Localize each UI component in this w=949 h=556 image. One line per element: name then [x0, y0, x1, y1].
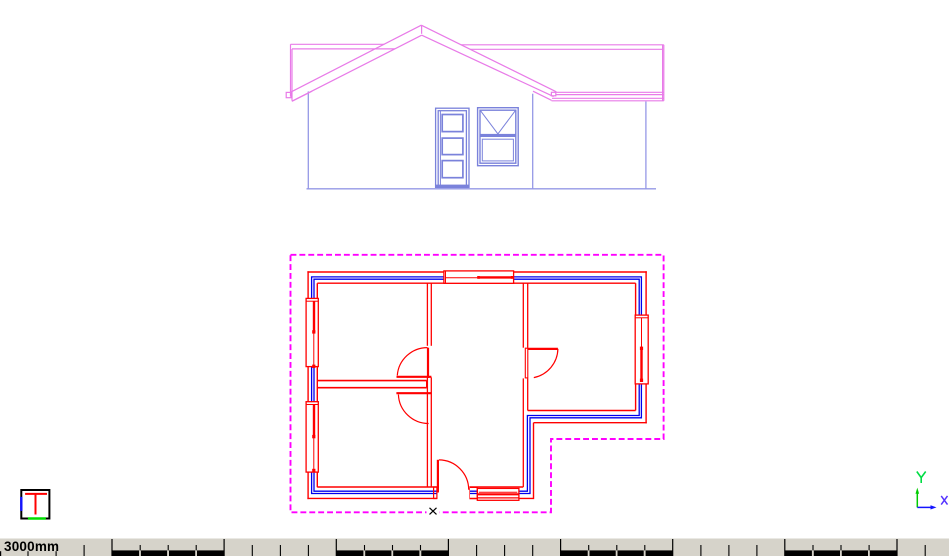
svg-text:3000mm: 3000mm: [4, 539, 59, 554]
